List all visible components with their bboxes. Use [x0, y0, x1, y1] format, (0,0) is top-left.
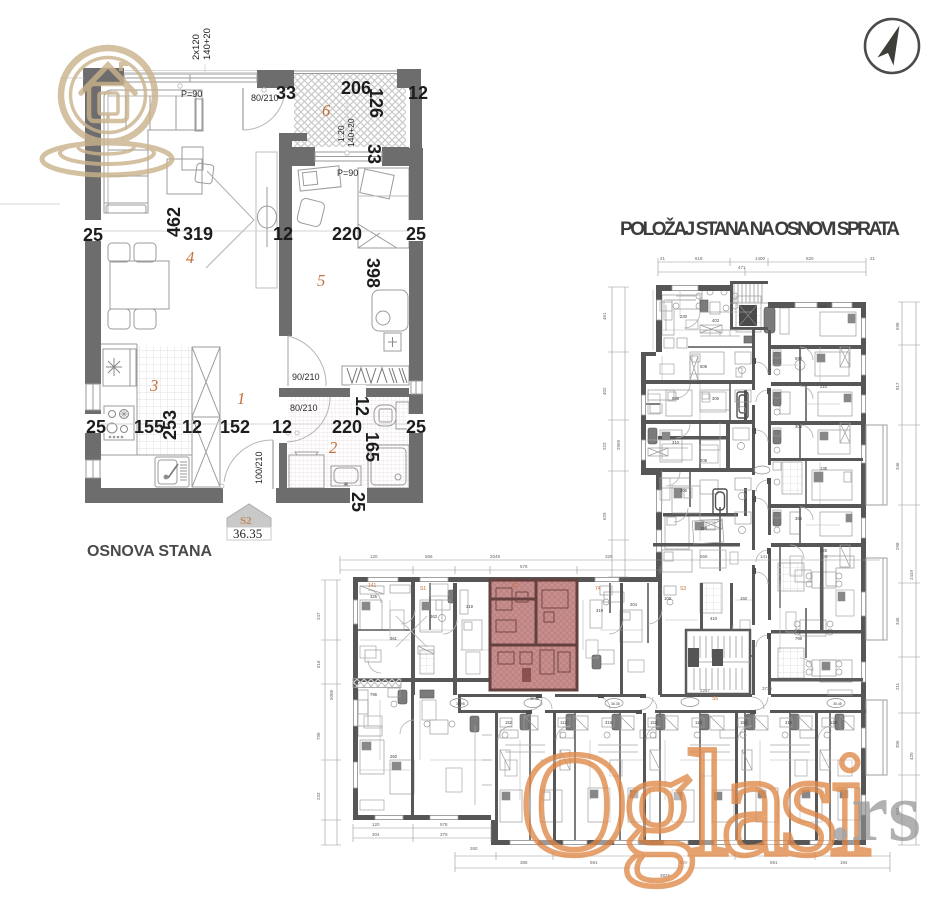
svg-text:319: 319 [466, 604, 474, 609]
svg-text:402: 402 [602, 387, 607, 395]
svg-text:398: 398 [363, 258, 383, 288]
svg-text:796: 796 [370, 692, 378, 697]
svg-text:210: 210 [820, 384, 828, 389]
svg-text:223: 223 [602, 442, 607, 450]
svg-text:140+20: 140+20 [346, 118, 356, 147]
svg-text:25: 25 [83, 225, 103, 245]
svg-text:25: 25 [406, 417, 426, 437]
svg-text:2: 2 [329, 438, 337, 457]
svg-text:230: 230 [680, 314, 688, 319]
svg-text:629: 629 [602, 512, 607, 520]
svg-text:.rs: .rs [830, 766, 921, 859]
svg-text:260: 260 [470, 846, 478, 851]
svg-text:25: 25 [86, 417, 106, 437]
svg-text:556: 556 [425, 554, 433, 559]
svg-text:253: 253 [160, 410, 180, 440]
svg-text:220: 220 [332, 224, 362, 244]
svg-text:Oglasi: Oglasi [520, 721, 869, 887]
svg-text:2257: 2257 [700, 688, 711, 693]
svg-text:1: 1 [237, 389, 245, 408]
svg-text:12: 12 [408, 83, 428, 103]
svg-text:37.95: 37.95 [456, 702, 465, 706]
svg-text:21: 21 [660, 256, 666, 261]
svg-text:152: 152 [220, 417, 250, 437]
svg-text:126: 126 [366, 88, 386, 118]
svg-text:211: 211 [895, 682, 900, 690]
svg-text:138: 138 [820, 466, 828, 471]
svg-text:598: 598 [895, 322, 900, 330]
svg-text:2909: 2909 [616, 439, 621, 450]
svg-text:798: 798 [795, 636, 803, 641]
svg-text:12: 12 [272, 417, 292, 437]
svg-text:80/210: 80/210 [290, 403, 318, 413]
svg-text:S2: S2 [512, 583, 518, 589]
svg-text:OSNOVA STANA: OSNOVA STANA [87, 543, 212, 560]
svg-text:150: 150 [700, 526, 708, 531]
svg-text:21: 21 [870, 256, 876, 261]
svg-text:420: 420 [909, 752, 914, 760]
svg-text:220: 220 [332, 417, 362, 437]
svg-text:36.35: 36.35 [530, 697, 539, 701]
svg-text:379: 379 [440, 832, 448, 837]
svg-text:36.35: 36.35 [233, 526, 262, 541]
svg-text:25: 25 [406, 224, 426, 244]
svg-text:566: 566 [700, 554, 708, 559]
svg-text:120: 120 [370, 554, 378, 559]
svg-text:140+20: 140+20 [202, 28, 213, 60]
svg-text:346: 346 [895, 462, 900, 470]
svg-text:806: 806 [820, 554, 828, 559]
svg-text:103: 103 [664, 596, 672, 601]
svg-text:319: 319 [596, 608, 604, 613]
svg-text:128: 128 [820, 548, 828, 553]
svg-text:2x120: 2x120 [191, 34, 202, 60]
svg-text:233: 233 [316, 792, 321, 800]
svg-text:100/210: 100/210 [254, 451, 264, 484]
svg-text:5: 5 [317, 271, 325, 290]
svg-text:74: 74 [595, 586, 601, 592]
svg-text:598: 598 [672, 396, 680, 401]
svg-text:306: 306 [712, 396, 720, 401]
svg-text:S3: S3 [680, 586, 686, 592]
svg-text:33: 33 [276, 83, 296, 103]
svg-text:304: 304 [372, 832, 380, 837]
svg-text:298: 298 [895, 542, 900, 550]
svg-text:208: 208 [700, 458, 708, 463]
svg-text:6: 6 [322, 101, 331, 120]
svg-text:3: 3 [149, 376, 158, 395]
svg-text:310: 310 [672, 440, 680, 445]
svg-text:12: 12 [352, 396, 372, 416]
svg-text:90/210: 90/210 [292, 372, 320, 382]
svg-text:361: 361 [390, 636, 398, 641]
svg-text:618: 618 [695, 256, 703, 261]
svg-text:33: 33 [364, 144, 384, 164]
svg-text:POLOŽAJ STANA NA OSNOVI SPRATA: POLOŽAJ STANA NA OSNOVI SPRATA [620, 218, 900, 240]
svg-text:P=90: P=90 [181, 89, 202, 99]
svg-text:817: 817 [895, 382, 900, 390]
svg-text:578: 578 [440, 822, 448, 827]
svg-text:204: 204 [630, 602, 638, 607]
svg-text:150: 150 [740, 596, 748, 601]
svg-text:471: 471 [738, 265, 746, 270]
svg-text:508: 508 [700, 364, 708, 369]
svg-text:598: 598 [795, 356, 803, 361]
svg-text:3735: 3735 [762, 686, 773, 691]
svg-text:260: 260 [390, 754, 398, 759]
svg-text:1400: 1400 [755, 256, 766, 261]
svg-text:2049: 2049 [490, 554, 501, 559]
svg-text:363: 363 [430, 614, 438, 619]
svg-text:5008: 5008 [329, 689, 334, 700]
svg-text:120: 120 [372, 822, 380, 827]
svg-text:2449: 2449 [909, 569, 914, 580]
svg-text:798: 798 [316, 732, 321, 740]
svg-text:306: 306 [795, 424, 803, 429]
svg-text:325: 325 [370, 594, 378, 599]
svg-text:12: 12 [182, 417, 202, 437]
svg-text:346: 346 [895, 617, 900, 625]
svg-text:306: 306 [895, 740, 900, 748]
svg-text:403: 403 [712, 318, 720, 323]
svg-text:410: 410 [710, 616, 718, 621]
svg-text:461: 461 [602, 312, 607, 320]
svg-text:P=90: P=90 [337, 168, 358, 178]
svg-text:80/210: 80/210 [251, 93, 279, 103]
svg-text:25: 25 [348, 492, 368, 512]
svg-text:462: 462 [164, 207, 184, 237]
svg-text:S1: S1 [420, 586, 426, 592]
svg-text:152: 152 [505, 720, 513, 725]
svg-text:36.35: 36.35 [611, 702, 620, 706]
svg-text:366: 366 [795, 516, 803, 521]
svg-text:616: 616 [316, 660, 321, 668]
svg-text:247: 247 [316, 612, 321, 620]
svg-text:576: 576 [520, 564, 528, 569]
svg-text:4: 4 [186, 248, 194, 267]
svg-text:360: 360 [820, 304, 828, 309]
svg-text:206: 206 [680, 488, 688, 493]
svg-text:1.20: 1.20 [336, 125, 346, 142]
svg-text:12: 12 [273, 224, 293, 244]
svg-text:165: 165 [362, 432, 382, 462]
svg-text:35.45: 35.45 [833, 702, 842, 706]
svg-text:S5: S5 [712, 696, 718, 702]
svg-text:325: 325 [605, 554, 613, 559]
svg-text:141: 141 [368, 583, 377, 589]
svg-text:319: 319 [183, 224, 213, 244]
svg-text:620: 620 [806, 256, 814, 261]
svg-text:141: 141 [760, 554, 768, 559]
